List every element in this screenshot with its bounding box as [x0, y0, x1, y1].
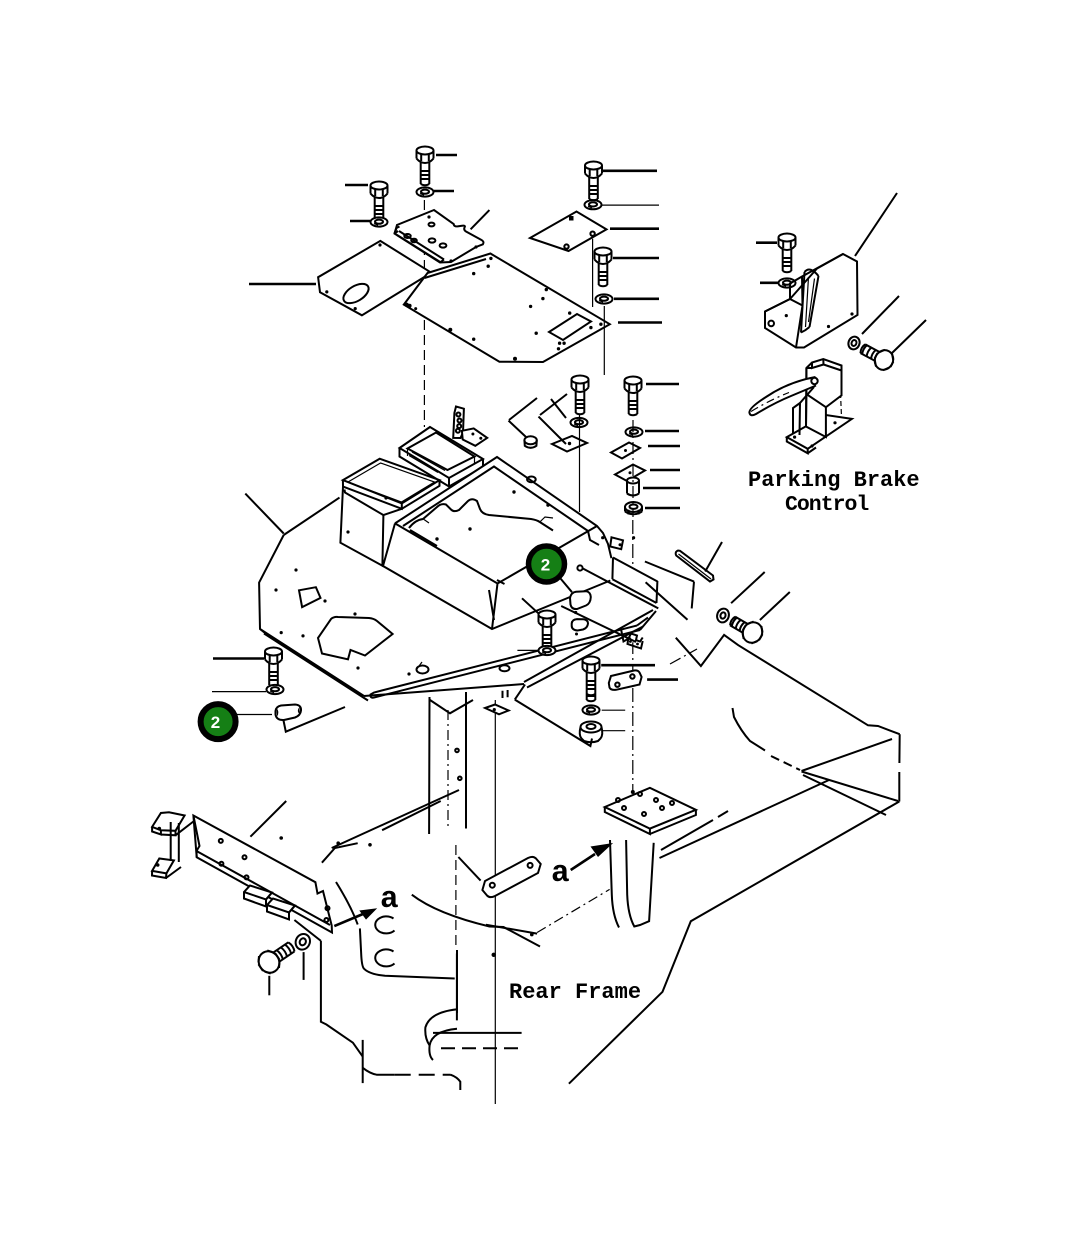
svg-text:2: 2 [541, 556, 550, 575]
svg-text:Parking Brake: Parking Brake [748, 468, 920, 493]
svg-text:a: a [380, 882, 399, 917]
svg-text:a: a [551, 856, 570, 891]
svg-text:Control: Control [785, 493, 869, 517]
svg-text:Rear Frame: Rear Frame [509, 980, 641, 1005]
svg-text:2: 2 [211, 713, 220, 732]
